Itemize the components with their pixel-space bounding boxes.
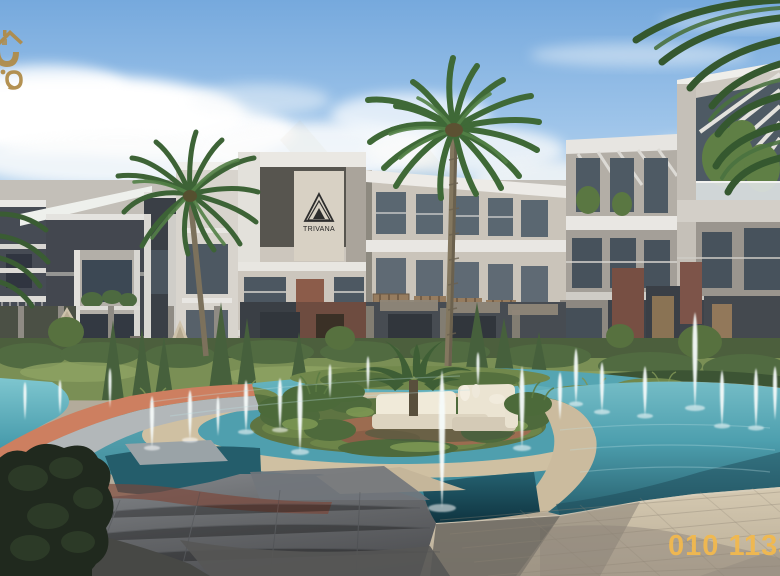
svg-text:TRIVANA: TRIVANA [303, 226, 335, 233]
svg-text:010 1133: 010 1133 [668, 530, 780, 562]
